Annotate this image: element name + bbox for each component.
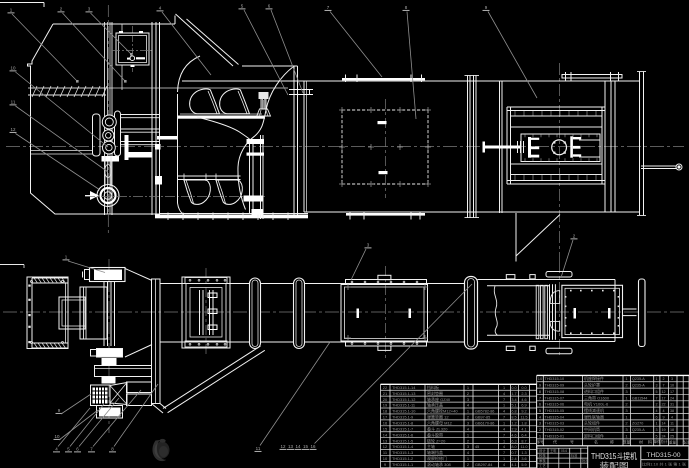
svg-text:5: 5 [655,434,657,438]
svg-text:号: 号 [570,440,574,445]
svg-text:THD315.1-13: THD315.1-13 [392,391,415,396]
svg-text:三角带 O1600: 三角带 O1600 [584,394,610,400]
svg-text:THD315-00: THD315-00 [647,452,682,459]
svg-text:7: 7 [503,398,505,402]
svg-text:15: 15 [303,444,309,449]
svg-text:THD315-04: THD315-04 [545,415,565,419]
svg-text:5.9: 5.9 [521,463,526,467]
svg-text:Q235-A: Q235-A [632,377,645,381]
svg-text:16: 16 [310,444,316,449]
svg-text:THD315-05: THD315-05 [545,409,565,413]
svg-text:1.3: 1.3 [521,451,526,455]
svg-text:17: 17 [383,415,388,420]
svg-text:1: 1 [503,439,505,443]
svg-text:摆线减速机: 摆线减速机 [584,407,604,413]
svg-text:10: 10 [538,376,543,381]
svg-text:1.8: 1.8 [521,421,526,425]
svg-text:挡料板: 挡料板 [427,384,439,390]
svg-text:10: 10 [10,66,16,71]
svg-text:0.0: 0.0 [511,386,516,390]
svg-text:2.3: 2.3 [521,392,526,396]
svg-text:滚动轴承 308: 滚动轴承 308 [427,461,452,467]
svg-text:4.6: 4.6 [511,433,516,437]
svg-text:7: 7 [655,396,657,400]
svg-text:4.1: 4.1 [521,427,526,431]
svg-text:六角螺母 M12: 六角螺母 M12 [427,419,453,425]
svg-text:2: 2 [655,403,657,407]
svg-text:THD315-07: THD315-07 [545,396,565,400]
svg-text:总计: 总计 [661,439,669,444]
svg-text:12: 12 [10,127,16,132]
svg-text:GB297-84: GB297-84 [475,463,492,467]
svg-text:3: 3 [655,384,657,388]
svg-text:5: 5 [655,390,657,394]
svg-text:4: 4 [503,410,505,414]
svg-text:GB97-85: GB97-85 [475,416,490,420]
svg-text:THD315-01: THD315-01 [545,434,565,438]
svg-text:20: 20 [383,397,388,402]
svg-text:2.4: 2.4 [511,457,516,461]
svg-text:5.1: 5.1 [511,404,516,408]
svg-text:05.6: 05.6 [561,449,567,453]
svg-text:25: 25 [670,434,674,438]
svg-text:13: 13 [288,444,294,449]
svg-text:19: 19 [383,403,388,408]
svg-text:21: 21 [383,391,388,396]
svg-text:材: 材 [639,440,643,445]
svg-text:7: 7 [503,416,505,420]
svg-text:料: 料 [648,440,652,445]
svg-text:弹性联轴器: 弹性联轴器 [584,413,604,419]
svg-text:轴承座 GZ40: 轴承座 GZ40 [427,396,451,402]
svg-text:6.3: 6.3 [511,439,516,443]
svg-text:THD315.1-14: THD315.1-14 [392,385,416,390]
svg-text:6.4: 6.4 [521,433,526,437]
svg-text:6: 6 [655,415,657,419]
svg-text:31: 31 [670,403,674,407]
svg-text:单件: 单件 [654,439,662,444]
svg-text:THD315-03: THD315-03 [545,422,565,426]
svg-text:19: 19 [661,428,665,432]
svg-text:18: 18 [670,428,674,432]
svg-text:1: 1 [503,386,505,390]
svg-text:畚斗 ZL320: 畚斗 ZL320 [427,425,448,431]
svg-text:THD315.1-9: THD315.1-9 [392,415,413,420]
svg-text:THD315-06: THD315-06 [545,403,565,407]
svg-text:11: 11 [670,422,674,426]
svg-text:4: 4 [662,409,664,413]
svg-text:14: 14 [383,432,388,437]
svg-text:ZG270: ZG270 [632,422,643,426]
svg-text:机座焊接件: 机座焊接件 [584,375,604,381]
svg-text:Q235-A: Q235-A [632,428,645,432]
svg-text:1.2: 1.2 [511,421,516,425]
svg-text:11.5: 11.5 [520,416,527,420]
svg-text:3.4: 3.4 [511,398,516,402]
svg-text:11.0: 11.0 [520,445,527,449]
svg-text:0.7: 0.7 [511,451,516,455]
svg-text:17: 17 [661,396,665,400]
svg-text:畚斗胶带: 畚斗胶带 [427,431,443,437]
svg-text:3: 3 [671,377,673,381]
svg-text:3.6: 3.6 [521,457,526,461]
svg-text:4: 4 [503,463,505,467]
svg-text:13: 13 [383,438,388,443]
svg-text:GB5782-86: GB5782-86 [475,410,494,414]
svg-text:4: 4 [655,409,657,413]
svg-text:15: 15 [383,426,388,431]
svg-text:11: 11 [11,100,16,105]
svg-text:7: 7 [503,451,505,455]
svg-text:1: 1 [655,377,657,381]
svg-text:GB6170-86: GB6170-86 [475,421,494,425]
svg-text:THD315.1-11: THD315.1-11 [392,403,415,408]
svg-text:审核: 审核 [539,458,546,463]
svg-text:头轮护罩: 头轮护罩 [584,382,600,388]
svg-text:18: 18 [383,409,388,414]
svg-text:观察检修门: 观察检修门 [427,455,447,461]
svg-text:4.1: 4.1 [511,463,516,467]
svg-text:密封垫圈: 密封垫圈 [427,390,443,396]
svg-text:设计: 设计 [539,448,546,453]
svg-text:中间机筒: 中间机筒 [584,426,600,432]
svg-text:THD315.1-8: THD315.1-8 [392,420,413,425]
svg-text:THD315.1-10: THD315.1-10 [392,409,416,414]
svg-text:重量: 重量 [669,440,677,445]
svg-text:7: 7 [662,384,664,388]
svg-text:1.7: 1.7 [511,392,516,396]
svg-text:THD315.1-3: THD315.1-3 [392,450,413,455]
svg-text:22: 22 [383,385,388,390]
svg-text:卸料口组件: 卸料口组件 [584,432,604,438]
svg-text:THD315-08: THD315-08 [545,390,565,394]
svg-text:THD315-02: THD315-02 [545,428,565,432]
svg-text:22: 22 [661,403,665,407]
svg-text:THD315.1-6: THD315.1-6 [392,432,413,437]
svg-text:数量: 数量 [623,440,631,445]
svg-text:标准: 标准 [571,453,578,458]
svg-text:8.7: 8.7 [521,439,526,443]
svg-text:名: 名 [594,440,598,445]
svg-text:38: 38 [670,409,674,413]
svg-text:备注: 备注 [683,440,689,445]
svg-text:4.6: 4.6 [521,398,526,402]
svg-text:THD315.1-5: THD315.1-5 [392,438,413,443]
svg-text:电机 Y100L-6: 电机 Y100L-6 [584,401,609,407]
svg-text:称: 称 [610,440,614,445]
svg-text:1: 1 [655,422,657,426]
svg-text:THD315.1-4: THD315.1-4 [392,444,414,449]
svg-text:10: 10 [54,434,60,439]
svg-text:校核: 校核 [539,453,546,458]
svg-text:4: 4 [671,415,673,419]
svg-text:轴承压盖: 轴承压盖 [427,402,443,408]
svg-text:链轮 Z=20: 链轮 Z=20 [427,437,446,443]
svg-text:序号: 序号 [536,440,544,445]
svg-text:THD315.1-12: THD315.1-12 [392,397,415,402]
svg-text:8.5: 8.5 [511,416,516,420]
svg-text:3: 3 [655,428,657,432]
svg-text:0.0: 0.0 [521,386,526,390]
svg-text:12: 12 [280,444,286,449]
svg-text:4: 4 [503,427,505,431]
svg-text:7: 7 [503,433,505,437]
svg-text:工艺: 工艺 [539,463,546,468]
svg-text:6.8: 6.8 [511,410,516,414]
svg-text:4: 4 [503,392,505,396]
svg-text:9: 9 [662,415,664,419]
svg-text:弹簧垫圈 12: 弹簧垫圈 12 [427,414,449,420]
svg-text:Q235-A: Q235-A [632,384,645,388]
svg-text:1: 1 [503,421,505,425]
svg-text:代: 代 [553,440,557,445]
svg-text:12: 12 [383,444,388,449]
svg-text:6.9: 6.9 [521,404,526,408]
svg-text:24: 24 [670,396,674,400]
svg-text:17: 17 [670,390,674,394]
svg-text:GB11544: GB11544 [632,396,647,400]
svg-text:THD315斗提机: THD315斗提机 [591,451,637,461]
svg-text:14: 14 [295,444,301,449]
svg-text:轴端挡盖: 轴端挡盖 [427,449,443,455]
svg-text:14: 14 [661,422,665,426]
svg-text:2: 2 [662,377,664,381]
svg-text:16: 16 [383,420,388,425]
svg-text:THD315-10: THD315-10 [545,377,565,381]
svg-text:1: 1 [503,404,505,408]
svg-text:1: 1 [503,457,505,461]
svg-text:9.2: 9.2 [521,410,526,414]
svg-text:比例1:10 共 1 张 第 1 张: 比例1:10 共 1 张 第 1 张 [642,462,687,467]
svg-text:THD315-09: THD315-09 [545,384,565,388]
svg-text:进料口组件: 进料口组件 [584,388,604,394]
svg-text:10: 10 [670,384,674,388]
svg-text:THD315.1-7: THD315.1-7 [392,426,413,431]
svg-text:THD315.1-2: THD315.1-2 [392,456,413,461]
svg-text:THD315.1-1: THD315.1-1 [392,462,413,467]
svg-text:2.9: 2.9 [511,427,516,431]
svg-text:12: 12 [661,390,665,394]
svg-text:45: 45 [475,445,479,449]
svg-text:4: 4 [503,445,505,449]
svg-text:24: 24 [661,434,665,438]
svg-text:11: 11 [256,446,261,451]
svg-text:主轴: 主轴 [427,443,435,449]
svg-text:六角螺栓M12×40: 六角螺栓M12×40 [427,408,458,414]
svg-text:10: 10 [383,456,388,461]
svg-text:王明: 王明 [550,449,556,453]
svg-text:8.0: 8.0 [511,445,516,449]
svg-text:头轮组件: 头轮组件 [584,420,600,426]
svg-text:批准: 批准 [582,458,589,463]
